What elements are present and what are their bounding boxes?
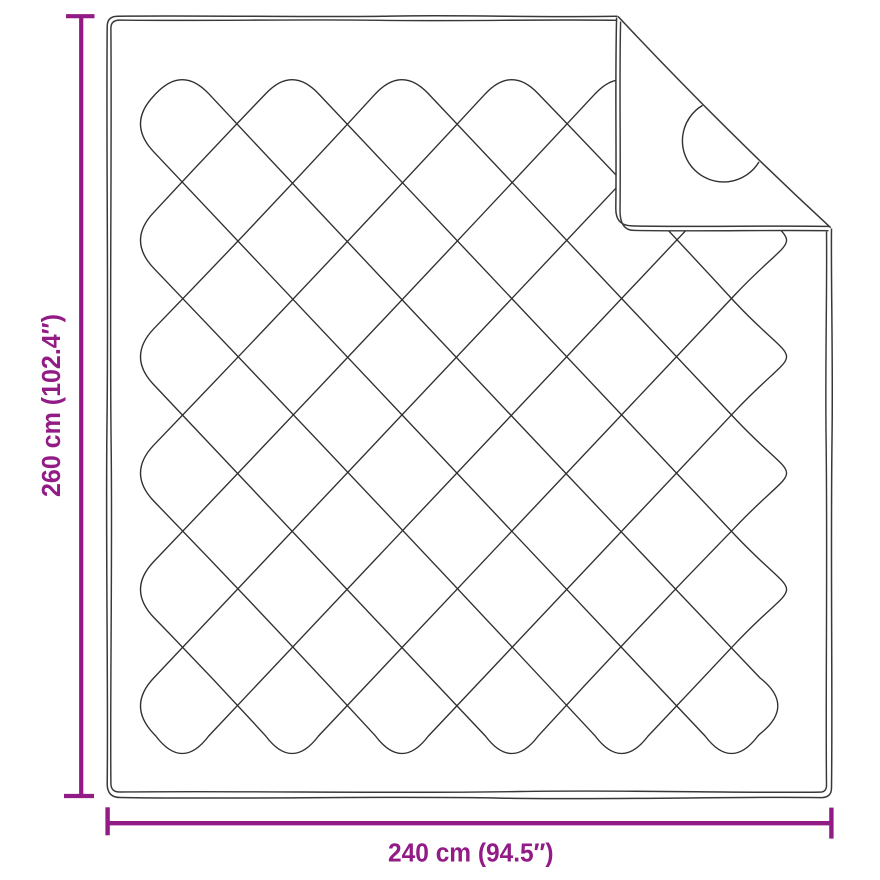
svg-text:240 cm (94.5″): 240 cm (94.5″) (388, 840, 554, 868)
svg-text:260 cm (102.4″): 260 cm (102.4″) (38, 314, 66, 497)
